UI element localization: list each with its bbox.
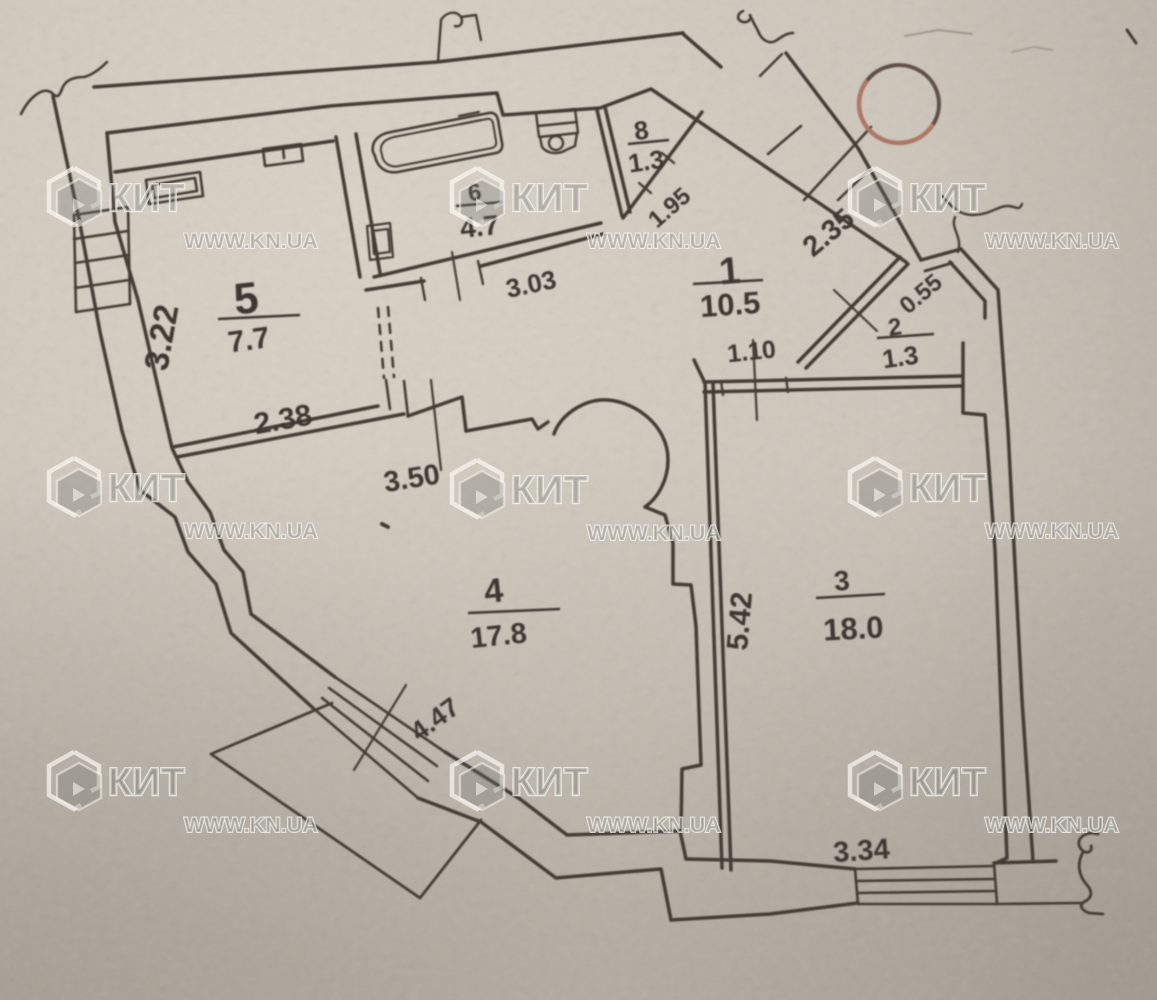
svg-text:10.5: 10.5 [699, 285, 762, 324]
svg-text:1.10: 1.10 [726, 335, 777, 368]
svg-text:4: 4 [482, 571, 505, 611]
svg-text:3.34: 3.34 [832, 833, 891, 869]
svg-text:1.3: 1.3 [626, 144, 666, 179]
svg-text:5.42: 5.42 [721, 591, 759, 652]
svg-text:1.3: 1.3 [880, 340, 920, 375]
svg-text:18.0: 18.0 [822, 610, 884, 648]
svg-text:7.7: 7.7 [226, 321, 272, 359]
svg-text:17.8: 17.8 [469, 617, 528, 655]
svg-text:3: 3 [833, 565, 851, 597]
